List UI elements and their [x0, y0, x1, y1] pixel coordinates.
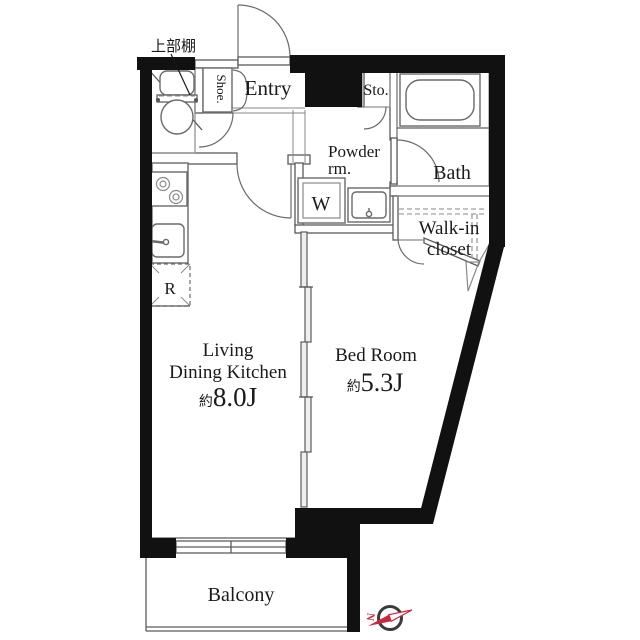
sliding-door-panel [301, 452, 307, 507]
ldk-label-line2: Dining Kitchen [169, 362, 287, 383]
balcony-label: Balcony [208, 584, 275, 606]
wall-diagonal [417, 243, 505, 524]
entry-door-sill [238, 57, 290, 65]
bathtub-icon [397, 74, 489, 128]
bedroom-size-label: 約5.3J [347, 368, 404, 397]
shoe-label: Shoe. [214, 74, 229, 103]
wall [489, 55, 505, 247]
bedroom-label: Bed Room [335, 345, 417, 366]
washer-label: W [312, 193, 331, 215]
sliding-partition [299, 232, 313, 507]
wall [390, 70, 397, 140]
sliding-door-panel [301, 232, 307, 287]
faucet-knob [163, 239, 168, 244]
ldk-size-prefix: 約 [199, 394, 213, 410]
closet-label-line2: closet [427, 239, 472, 260]
powder-room-label-line2: rm. [328, 159, 351, 178]
toilet-door-arc [199, 113, 233, 147]
wall [295, 225, 397, 233]
floorplan-canvas: 上部棚 Shoe. Entry Sto. Powder rm. Bath W W… [0, 0, 640, 640]
wall [347, 524, 360, 632]
wall [195, 68, 203, 113]
ldk-size-value: 8.0J [213, 382, 257, 412]
toilet-hinge-dot [156, 98, 160, 102]
entry-label: Entry [245, 76, 292, 100]
sliding-door-panel [305, 397, 311, 452]
wall [393, 196, 398, 240]
closet-label-line1: Walk-in [419, 218, 480, 239]
compass-north-label: N [363, 612, 376, 622]
vanity-sink-icon [348, 188, 390, 222]
vanity-faucet-knob [366, 211, 371, 216]
storage-label: Sto. [363, 82, 388, 99]
ldk-label-line1: Living [203, 340, 254, 361]
upper-shelf-label: 上部棚 [151, 38, 196, 55]
storage-door-arc [364, 107, 386, 129]
toilet-hinge-dot [194, 98, 198, 102]
entry-door-arc [238, 5, 290, 57]
sliding-door-panel [301, 342, 307, 397]
compass-icon: N [363, 607, 412, 630]
wall [195, 60, 238, 68]
wall [390, 186, 494, 196]
wall [286, 538, 310, 558]
bath-door-leaf [391, 138, 397, 184]
toilet-bowl [161, 100, 193, 134]
wall [140, 57, 152, 556]
toilet-icon [149, 70, 202, 134]
fridge-label: R [164, 279, 176, 298]
ldk-door-arc [237, 164, 291, 218]
bath-label: Bath [433, 162, 471, 184]
sliding-door-panel [305, 287, 311, 342]
closet-door-arc [398, 238, 424, 264]
bathtub-inner [406, 80, 474, 120]
bedroom-size-prefix: 約 [347, 379, 361, 395]
floorplan-drawing: 上部棚 Shoe. Entry Sto. Powder rm. Bath W W… [0, 0, 640, 640]
bedroom-size-value: 5.3J [361, 368, 404, 397]
wall [290, 55, 505, 73]
wall [140, 538, 176, 558]
ldk-size-label: 約8.0J [199, 382, 257, 412]
closet-corner-fold [466, 262, 479, 291]
